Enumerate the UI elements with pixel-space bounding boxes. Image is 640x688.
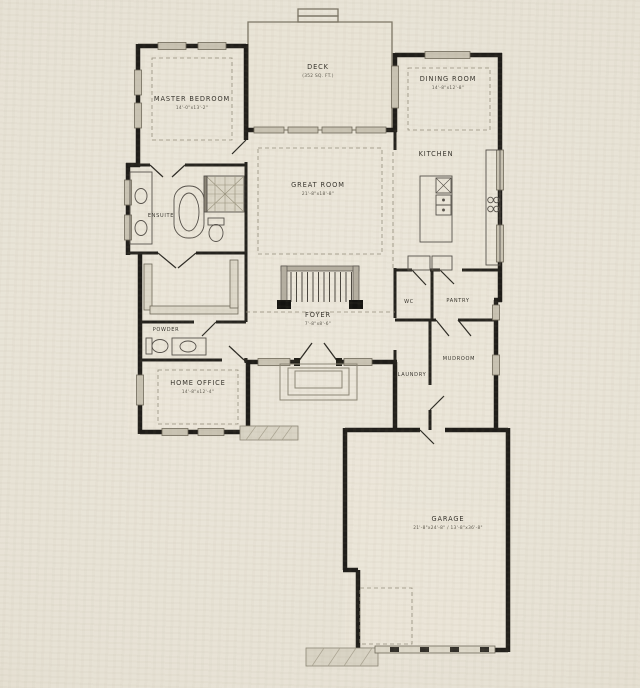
room-mudroom: MUDROOM [443,356,475,362]
room-dims: 21'-8"x18'-8" [302,191,334,197]
room-label: GARAGE [431,515,464,523]
room-dims: 7'-8"x8'-6" [305,321,331,327]
porch-steps [280,364,357,400]
room-label: KITCHEN [419,150,454,158]
room-label: POWDER [153,327,180,333]
drawing-sheet: MASTER BEDROOM 14'-0"x13'-2" DECK (352 S… [0,0,640,688]
room-ensuite: ENSUITE [148,213,174,219]
room-dims: 14'-8"x12'-8" [432,85,464,91]
room-label: FOYER [305,311,331,319]
shower-fixture [204,176,244,212]
room-dims: (352 SQ. FT.) [302,73,334,79]
room-label: LAUNDRY [398,372,427,378]
room-label: WC [404,299,414,305]
room-wc: WC [404,299,414,305]
room-kitchen: KITCHEN [419,150,454,158]
room-label: MUDROOM [443,356,475,362]
room-dims: 14'-0"x13'-2" [176,105,208,111]
room-laundry: LAUNDRY [398,372,427,378]
room-label: MASTER BEDROOM [154,95,230,103]
floor-fill [128,22,508,650]
garage-door [375,646,495,653]
room-label: GREAT ROOM [291,181,345,189]
floor-plan: MASTER BEDROOM 14'-0"x13'-2" DECK (352 S… [0,0,640,688]
room-label: HOME OFFICE [170,379,226,387]
room-label: DINING ROOM [420,75,477,83]
room-label: ENSUITE [148,213,174,219]
room-label: PANTRY [446,298,470,304]
room-dims: 21'-8"x24'-8" / 13'-8"x36'-8" [413,525,483,531]
room-powder: POWDER [153,327,180,333]
room-pantry: PANTRY [446,298,470,304]
room-label: DECK [307,63,329,71]
room-dims: 14'-8"x12'-4" [182,389,214,395]
